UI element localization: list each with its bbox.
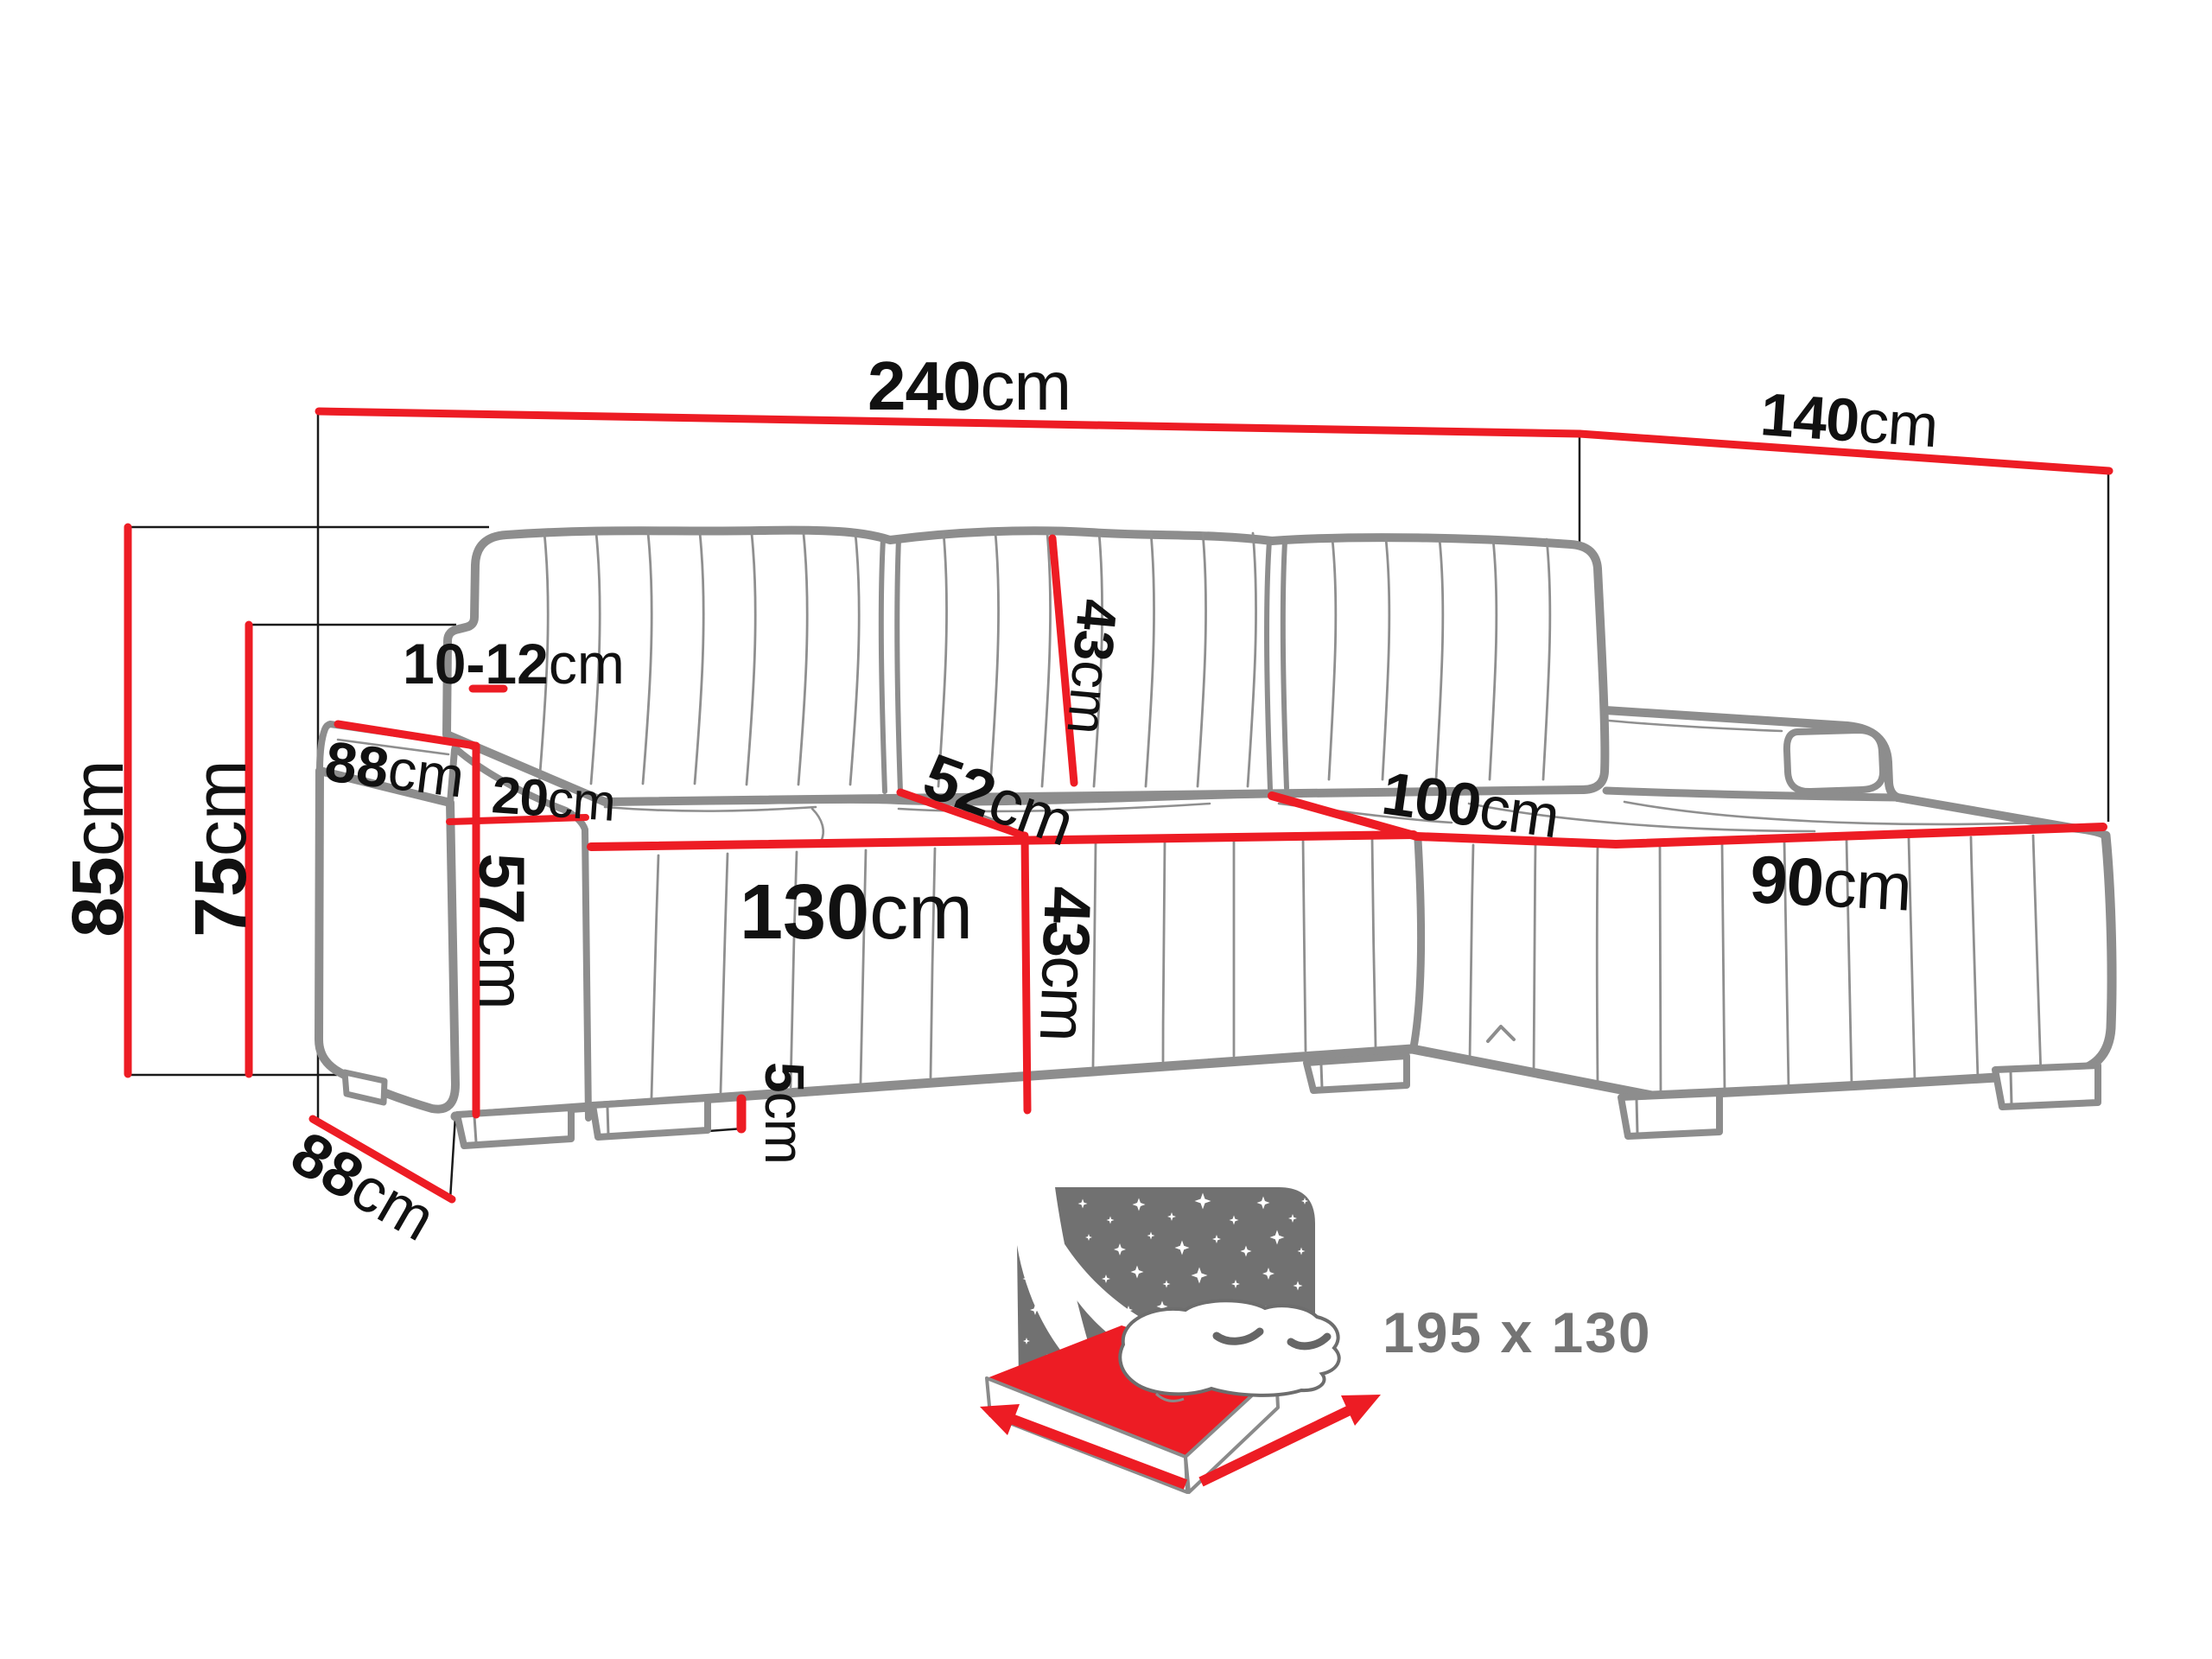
svg-text:240cm: 240cm xyxy=(868,347,1071,424)
svg-text:140cm: 140cm xyxy=(1758,380,1940,460)
svg-text:43cm: 43cm xyxy=(1055,597,1128,737)
svg-text:85cm: 85cm xyxy=(57,760,138,937)
svg-text:57cm: 57cm xyxy=(466,854,537,1010)
svg-text:43cm: 43cm xyxy=(1026,886,1104,1042)
svg-text:195 x 130: 195 x 130 xyxy=(1382,1300,1652,1364)
svg-text:75cm: 75cm xyxy=(180,760,261,937)
svg-text:10-12cm: 10-12cm xyxy=(403,632,625,696)
svg-text:5cm: 5cm xyxy=(753,1062,816,1164)
svg-text:130cm: 130cm xyxy=(740,869,973,956)
svg-text:90cm: 90cm xyxy=(1748,841,1913,925)
svg-text:20cm: 20cm xyxy=(490,766,617,832)
